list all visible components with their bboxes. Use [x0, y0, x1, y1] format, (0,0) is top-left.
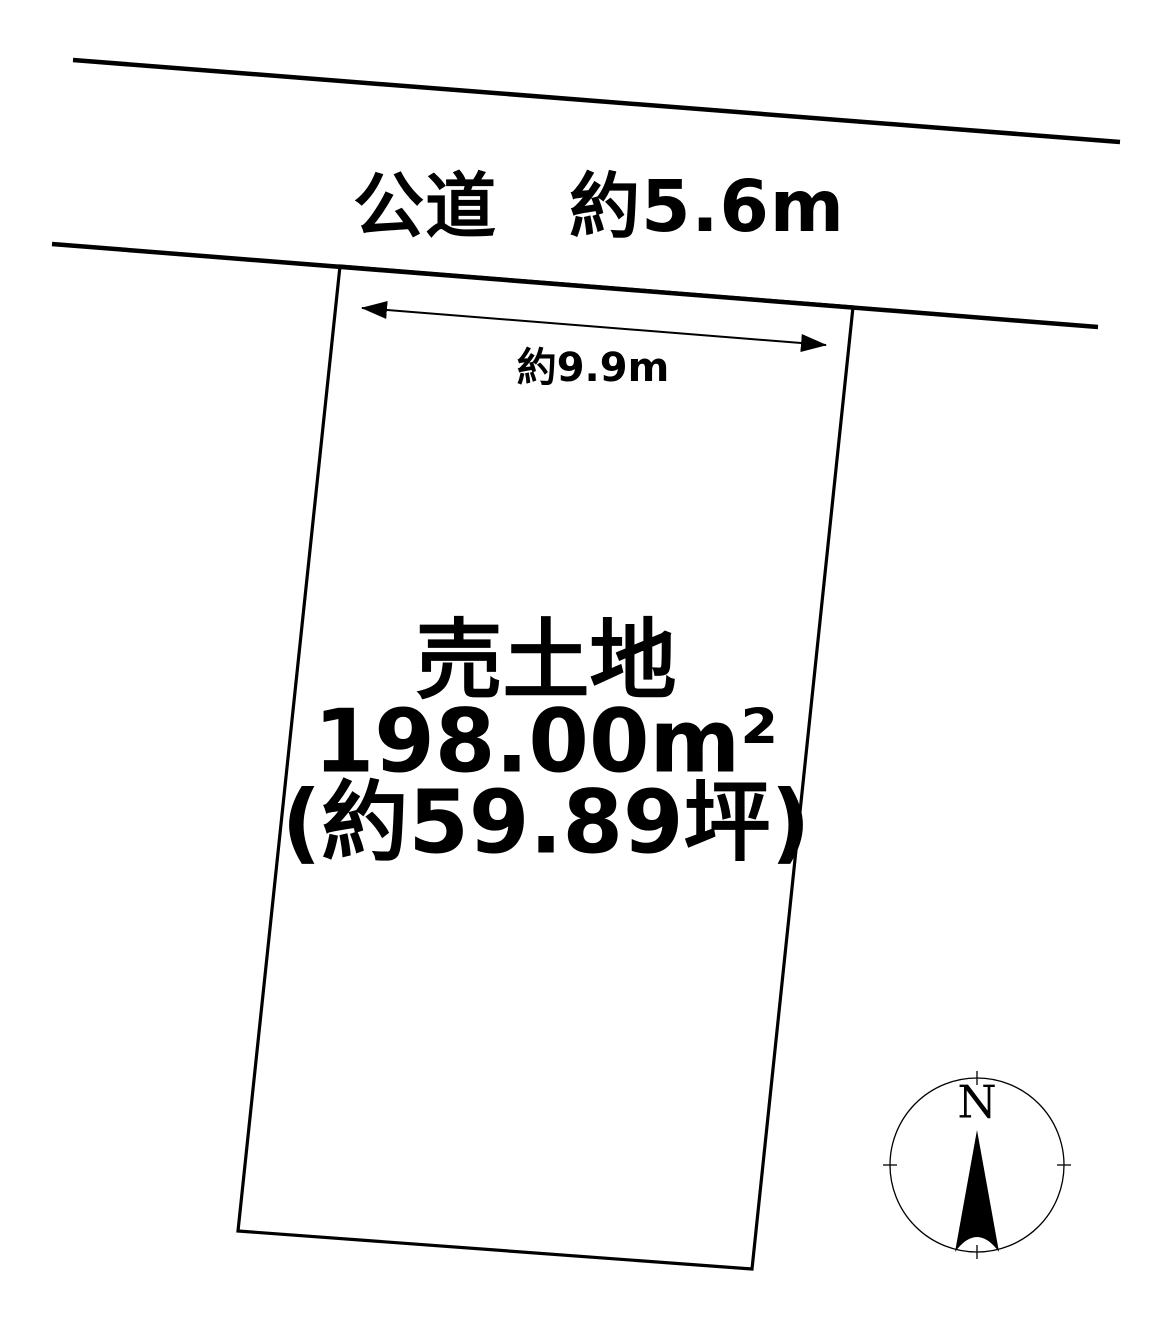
compass-north-label: N: [957, 1076, 996, 1129]
compass-needle-icon: [955, 1130, 999, 1252]
road-label: 公道 約5.6m: [353, 150, 845, 252]
parcel-area-sqm: 198.00m²: [282, 702, 811, 783]
land-plot-diagram: 公道 約5.6m 約9.9m 売土地 198.00m² (約59.89坪) N: [0, 0, 1172, 1330]
road-upper-edge-line: [73, 60, 1120, 142]
parcel-area-tsubo: (約59.89坪): [282, 782, 811, 863]
parcel-title: 売土地: [282, 621, 811, 702]
frontage-dimension-label: 約9.9m: [517, 335, 670, 393]
parcel-label: 売土地 198.00m² (約59.89坪): [282, 621, 811, 864]
